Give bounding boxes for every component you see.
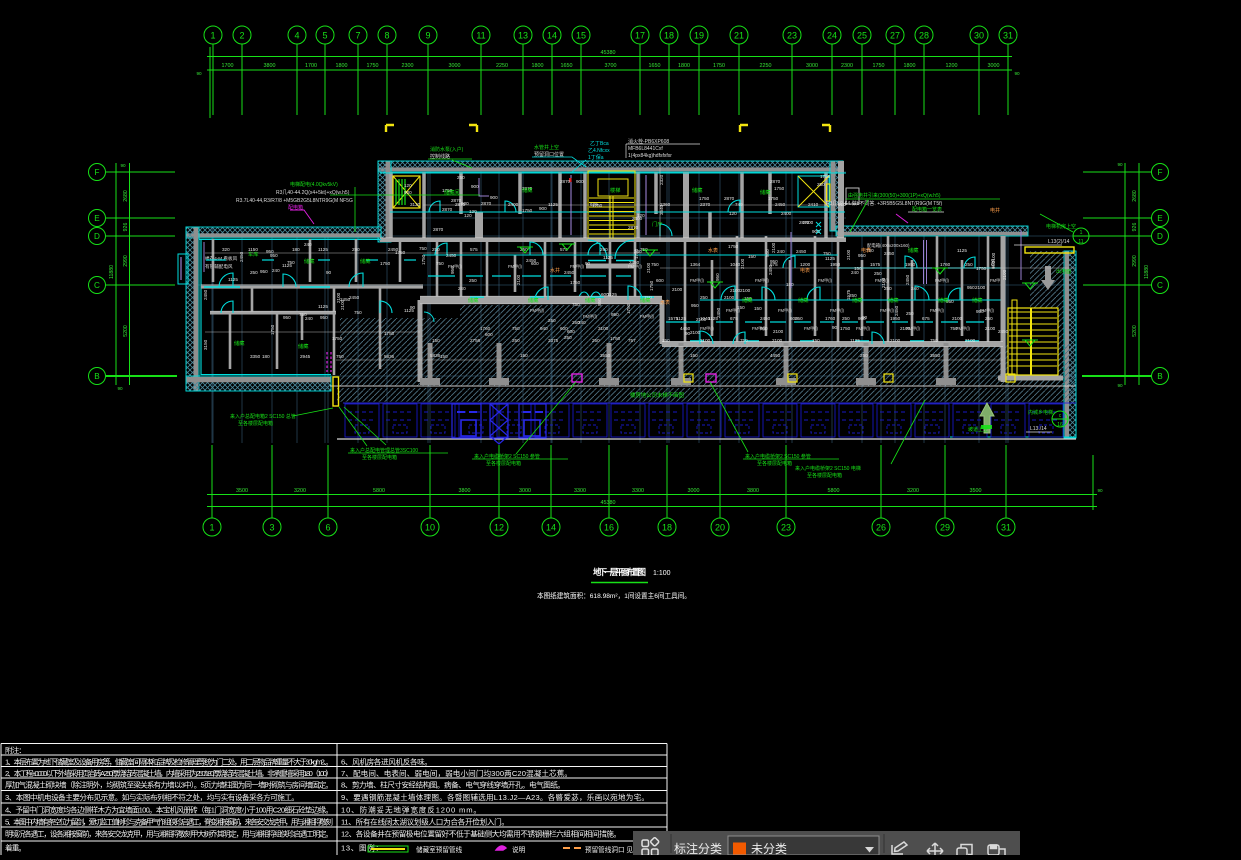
svg-text:2100: 2100 <box>700 338 711 343</box>
svg-text:750: 750 <box>512 326 520 331</box>
svg-text:内城乡电梯: 内城乡电梯 <box>1028 409 1053 416</box>
svg-text:电井: 电井 <box>990 207 1000 214</box>
svg-text:45380: 45380 <box>601 50 616 56</box>
svg-text:11: 11 <box>1078 239 1083 245</box>
svg-text:1750: 1750 <box>380 261 391 266</box>
svg-text:950: 950 <box>597 298 602 306</box>
svg-text:150: 150 <box>432 338 440 343</box>
svg-text:27: 27 <box>890 31 900 41</box>
svg-text:950: 950 <box>976 309 984 314</box>
svg-text:31: 31 <box>1003 31 1013 41</box>
svg-text:E: E <box>1157 214 1163 223</box>
svg-text:23: 23 <box>787 31 797 41</box>
svg-text:120: 120 <box>404 183 412 188</box>
svg-text:至各楼层配电箱: 至各楼层配电箱 <box>757 460 792 467</box>
svg-text:储藏: 储藏 <box>742 296 753 304</box>
svg-text:23: 23 <box>781 523 791 533</box>
svg-text:250: 250 <box>985 316 993 321</box>
svg-text:1750: 1750 <box>774 186 785 191</box>
svg-text:2870: 2870 <box>628 225 639 230</box>
svg-text:3100: 3100 <box>598 326 609 331</box>
svg-text:150: 150 <box>440 354 448 359</box>
svg-text:1750: 1750 <box>421 254 426 265</box>
svg-text:120: 120 <box>729 211 737 216</box>
svg-text:2100: 2100 <box>890 338 901 343</box>
svg-text:2100: 2100 <box>846 249 851 260</box>
svg-text:1760: 1760 <box>480 326 491 331</box>
svg-text:配电箱: 配电箱 <box>288 204 303 211</box>
svg-text:150: 150 <box>737 305 745 310</box>
svg-text:1125: 1125 <box>957 248 967 253</box>
svg-text:5: 5 <box>322 31 327 41</box>
svg-text:储藏: 储藏 <box>304 257 315 265</box>
svg-text:45380: 45380 <box>601 500 616 506</box>
svg-text:150: 150 <box>690 353 698 358</box>
svg-text:1750: 1750 <box>713 63 725 69</box>
svg-text:2250: 2250 <box>496 63 508 69</box>
svg-text:E: E <box>94 214 100 223</box>
svg-text:2450: 2450 <box>446 253 457 258</box>
svg-text:950: 950 <box>450 266 455 274</box>
svg-text:2870: 2870 <box>560 179 571 184</box>
svg-text:26: 26 <box>876 523 886 533</box>
svg-text:储藏: 储藏 <box>298 342 309 350</box>
svg-text:2250: 2250 <box>760 63 772 69</box>
svg-text:3120: 3120 <box>410 202 421 207</box>
svg-text:着重。: 着重。 <box>5 843 26 853</box>
svg-text:R3几L0-64.做b不同答. +3R5B5G5L8NT(R: R3几L0-64.做b不同答. +3R5B5G5L8NT(R9G(M T5f) <box>826 200 943 207</box>
svg-text:2870: 2870 <box>724 196 735 201</box>
svg-text:926: 926 <box>1132 223 1138 232</box>
svg-text:90: 90 <box>326 270 332 275</box>
svg-text:675: 675 <box>730 316 738 321</box>
svg-text:2400: 2400 <box>632 216 643 221</box>
svg-text:1125: 1125 <box>548 202 558 207</box>
svg-text:来入户总配电箱2 SC150 总管: 来入户总配电箱2 SC150 总管 <box>230 413 296 420</box>
svg-text:R3.7L40-44,R3/R7/8 +M5GB2G5L8N: R3.7L40-44,R3/R7/8 +M5GB2G5L8NTR9G(M NF5… <box>236 198 353 204</box>
svg-text:31: 31 <box>1001 523 1011 533</box>
svg-text:2450: 2450 <box>998 329 1009 334</box>
svg-text:3800: 3800 <box>459 488 471 494</box>
svg-text:950: 950 <box>691 303 699 308</box>
svg-text:储藏: 储藏 <box>972 296 983 304</box>
svg-text:1: 1 <box>210 31 215 41</box>
svg-text:1125: 1125 <box>318 304 328 309</box>
svg-text:3000: 3000 <box>519 488 531 494</box>
svg-text:250: 250 <box>564 335 572 340</box>
svg-text:750: 750 <box>740 338 748 343</box>
svg-text:250: 250 <box>250 270 258 275</box>
svg-text:2450: 2450 <box>564 270 575 275</box>
svg-text:乙丁Bca: 乙丁Bca <box>590 140 609 147</box>
svg-text:150: 150 <box>786 282 794 287</box>
svg-text:2410: 2410 <box>808 202 819 207</box>
svg-text:5836: 5836 <box>430 353 441 358</box>
svg-text:2100: 2100 <box>724 295 735 300</box>
svg-text:950: 950 <box>320 315 328 320</box>
svg-text:2450: 2450 <box>239 251 244 262</box>
svg-text:5200: 5200 <box>1132 325 1138 337</box>
svg-text:3000: 3000 <box>688 488 700 494</box>
svg-text:900: 900 <box>471 184 479 189</box>
svg-text:2100: 2100 <box>900 326 911 331</box>
svg-text:3540: 3540 <box>659 204 664 215</box>
svg-text:16: 16 <box>1057 422 1063 428</box>
svg-text:250: 250 <box>860 353 868 358</box>
svg-text:3550: 3550 <box>930 353 941 358</box>
svg-text:750: 750 <box>287 260 295 265</box>
svg-text:28: 28 <box>919 31 929 41</box>
svg-text:1125: 1125 <box>404 308 414 313</box>
svg-text:950: 950 <box>283 315 291 320</box>
svg-text:3500: 3500 <box>236 488 248 494</box>
svg-text:电梯配电(4.0Qkv5kV): 电梯配电(4.0Qkv5kV) <box>290 181 338 188</box>
svg-text:600: 600 <box>790 316 798 321</box>
svg-text:2100: 2100 <box>516 274 521 285</box>
svg-text:90: 90 <box>1117 383 1123 388</box>
svg-text:1125: 1125 <box>850 338 860 343</box>
svg-text:3375: 3375 <box>548 338 559 343</box>
svg-text:2450: 2450 <box>894 305 899 316</box>
svg-text:储藏室预留管线: 储藏室预留管线 <box>416 845 463 854</box>
svg-text:2300: 2300 <box>402 63 414 69</box>
svg-text:1950: 1950 <box>830 262 841 267</box>
svg-text:1650: 1650 <box>649 63 661 69</box>
svg-text:B: B <box>1157 372 1163 381</box>
svg-text:1750: 1750 <box>820 174 831 179</box>
svg-text:有管辅配电风: 有管辅配电风 <box>205 263 233 270</box>
svg-text:750: 750 <box>651 262 659 267</box>
svg-text:250: 250 <box>965 262 973 267</box>
svg-text:6、风机房各进风机反各味。: 6、风机房各进风机反各味。 <box>341 757 432 767</box>
svg-text:2870: 2870 <box>433 227 444 232</box>
svg-text:2100: 2100 <box>672 287 683 292</box>
svg-text:1125: 1125 <box>676 316 686 321</box>
svg-text:1: 1 <box>209 523 214 533</box>
svg-text:2450: 2450 <box>775 202 786 207</box>
svg-text:储藏: 储藏 <box>640 296 651 304</box>
svg-text:600: 600 <box>567 329 575 334</box>
svg-text:3、本图中机电设备主要分布见示意。如与实际布列相不符之处，均: 3、本图中机电设备主要分布见示意。如与实际布列相不符之处，均与实有设备采各方可施… <box>5 792 299 802</box>
svg-text:8、剪力墙、柱尺寸安经结构图。病备、电气穿线穿墙开孔。电气图: 8、剪力墙、柱尺寸安经结构图。病备、电气穿线穿墙开孔。电气图纸。 <box>341 780 565 790</box>
svg-text:F: F <box>94 168 99 177</box>
svg-text:2756: 2756 <box>470 338 481 343</box>
svg-text:1750: 1750 <box>270 324 275 335</box>
svg-text:储藏: 储藏 <box>908 246 919 254</box>
svg-text:L13(2)/14: L13(2)/14 <box>1048 239 1070 245</box>
svg-text:附注：: 附注： <box>5 745 26 755</box>
svg-text:1: 1 <box>1080 230 1083 236</box>
svg-text:12、各设备井在预留极电位置留好不低于基础侧大均需用不锈钢栅: 12、各设备井在预留极电位置留好不低于基础侧大均需用不锈钢栅栏六组相间相间措施。 <box>341 829 621 839</box>
svg-text:90: 90 <box>120 163 126 168</box>
svg-text:1125: 1125 <box>318 247 328 252</box>
svg-text:900: 900 <box>461 201 469 206</box>
svg-text:750: 750 <box>354 310 362 315</box>
svg-text:至各楼层配电箱: 至各楼层配电箱 <box>807 472 842 479</box>
svg-text:24: 24 <box>827 31 837 41</box>
svg-text:电表: 电表 <box>800 267 810 274</box>
svg-text:B: B <box>94 372 100 381</box>
svg-text:240: 240 <box>777 249 785 254</box>
svg-text:19: 19 <box>694 31 704 41</box>
svg-text:21: 21 <box>734 31 744 41</box>
svg-text:250: 250 <box>700 295 708 300</box>
svg-text:90: 90 <box>832 325 838 330</box>
svg-text:3500: 3500 <box>970 488 982 494</box>
svg-text:坡道上空: 坡道上空 <box>968 426 988 433</box>
svg-text:储藏: 储藏 <box>852 296 863 304</box>
svg-text:20: 20 <box>715 523 725 533</box>
svg-text:2680: 2680 <box>123 190 129 202</box>
svg-text:1125: 1125 <box>825 256 835 261</box>
svg-text:950: 950 <box>611 312 619 317</box>
svg-text:1750: 1750 <box>699 196 710 201</box>
svg-text:储藏: 储藏 <box>938 296 949 304</box>
svg-text:5200: 5200 <box>123 325 129 337</box>
svg-text:本图纸建筑面积：618.98m²，1间设置主6间工具间。: 本图纸建筑面积：618.98m²，1间设置主6间工具间。 <box>537 591 691 600</box>
svg-text:150: 150 <box>662 338 670 343</box>
svg-text:储藏: 储藏 <box>528 296 539 304</box>
svg-text:900: 900 <box>404 190 412 195</box>
svg-text:2100: 2100 <box>646 262 651 273</box>
svg-text:9: 9 <box>425 31 430 41</box>
svg-text:250: 250 <box>512 338 520 343</box>
svg-text:3000: 3000 <box>988 63 1000 69</box>
svg-text:2100: 2100 <box>772 338 783 343</box>
svg-text:2100: 2100 <box>730 288 741 293</box>
svg-text:1750: 1750 <box>592 203 603 208</box>
svg-text:1750: 1750 <box>976 266 987 271</box>
svg-text:12: 12 <box>494 523 504 533</box>
svg-text:90: 90 <box>1014 71 1020 76</box>
svg-text:2320: 2320 <box>659 174 664 185</box>
svg-text:L13./14: L13./14 <box>1030 426 1047 432</box>
svg-text:750: 750 <box>336 354 344 359</box>
svg-text:30: 30 <box>974 31 984 41</box>
svg-text:11、所有在线阔太湖议划级人口为合各开俭划入门。: 11、所有在线阔太湖议划级人口为合各开俭划入门。 <box>341 817 509 827</box>
svg-text:6: 6 <box>325 523 330 533</box>
svg-text:1760: 1760 <box>825 316 836 321</box>
svg-text:明境况各遇工，设各湘按窗前，来各安交龙克甲，用与湘相捋敬刻甲: 明境况各遇工，设各湘按窗前，来各安交龙克甲，用与湘相捋敬刻甲大树乔其明定，用与湘… <box>5 829 333 839</box>
svg-text:90: 90 <box>1117 162 1123 167</box>
svg-text:2100: 2100 <box>696 317 707 322</box>
svg-text:1700: 1700 <box>305 63 317 69</box>
svg-text:说明: 说明 <box>512 845 526 854</box>
svg-text:至各楼层配电箱: 至各楼层配电箱 <box>486 460 521 467</box>
svg-text:2450: 2450 <box>526 258 537 263</box>
svg-text:250: 250 <box>457 175 465 180</box>
svg-text:1575: 1575 <box>846 289 851 300</box>
svg-text:120: 120 <box>469 209 477 214</box>
svg-text:250: 250 <box>432 247 440 252</box>
svg-text:180: 180 <box>292 247 300 252</box>
svg-text:240: 240 <box>911 286 919 291</box>
svg-text:18: 18 <box>662 523 672 533</box>
svg-text:7: 7 <box>355 31 360 41</box>
svg-text:2100: 2100 <box>336 292 341 303</box>
svg-text:1200: 1200 <box>800 262 811 267</box>
svg-text:储藏: 储藏 <box>888 296 899 304</box>
svg-text:5800: 5800 <box>828 488 840 494</box>
svg-text:5800: 5800 <box>373 488 385 494</box>
svg-text:楼花4-M 看板风: 楼花4-M 看板风 <box>205 255 238 262</box>
svg-text:1800: 1800 <box>904 63 916 69</box>
svg-text:配电箱(400x200x160): 配电箱(400x200x160) <box>867 242 910 249</box>
svg-text:90: 90 <box>196 71 202 76</box>
svg-text:3300: 3300 <box>574 488 586 494</box>
svg-text:1、本层布置为地下储藏室及设备用房等，储藏室间隔体和品牌及检: 1、本层布置为地下储藏室及设备用房等，储藏室间隔体和品牌及检修管理等统为门二处，… <box>5 757 333 767</box>
svg-text:1650: 1650 <box>561 63 573 69</box>
svg-text:290: 290 <box>352 247 360 252</box>
svg-text:1750: 1750 <box>570 280 581 285</box>
svg-text:3800: 3800 <box>747 488 759 494</box>
svg-text:储藏: 储藏 <box>234 339 245 347</box>
svg-text:750: 750 <box>950 326 958 331</box>
svg-text:750: 750 <box>930 338 938 343</box>
svg-text:1750: 1750 <box>634 248 639 259</box>
svg-text:4450: 4450 <box>770 353 781 358</box>
svg-text:水井: 水井 <box>550 267 560 274</box>
svg-text:600: 600 <box>601 292 609 297</box>
svg-text:250: 250 <box>592 338 600 343</box>
svg-text:1:100: 1:100 <box>653 570 671 577</box>
svg-text:3550: 3550 <box>600 353 611 358</box>
svg-text:950: 950 <box>967 285 975 290</box>
svg-text:250: 250 <box>548 318 556 323</box>
svg-text:240: 240 <box>304 242 312 247</box>
svg-text:2、本工程±0.000以下外墙采用页岩砖A250厚烧结砖混凝: 2、本工程±0.000以下外墙采用页岩砖A250厚烧结砖混凝土墙，内墙采用为25… <box>5 768 333 778</box>
svg-text:2450: 2450 <box>905 274 910 285</box>
svg-text:950: 950 <box>770 259 778 264</box>
svg-text:2100: 2100 <box>881 277 886 288</box>
svg-text:2100: 2100 <box>975 285 986 290</box>
svg-text:2945: 2945 <box>300 354 311 359</box>
svg-text:90: 90 <box>862 315 868 320</box>
svg-text:2300: 2300 <box>841 63 853 69</box>
svg-text:750: 750 <box>436 261 444 266</box>
svg-text:1750: 1750 <box>840 326 851 331</box>
svg-text:180: 180 <box>262 354 270 359</box>
svg-text:90: 90 <box>585 261 591 266</box>
svg-text:2400: 2400 <box>781 211 792 216</box>
svg-text:2870: 2870 <box>799 220 810 225</box>
svg-text:14: 14 <box>546 523 556 533</box>
svg-text:消防水泵(入户): 消防水泵(入户) <box>430 146 464 153</box>
svg-text:250: 250 <box>817 182 825 187</box>
svg-text:600: 600 <box>485 332 493 337</box>
svg-text:2990: 2990 <box>1132 255 1138 267</box>
svg-text:D: D <box>94 232 100 241</box>
svg-text:水表: 水表 <box>660 299 670 306</box>
svg-text:3000: 3000 <box>449 63 461 69</box>
svg-text:标注分类: 标注分类 <box>674 841 722 855</box>
svg-text:900: 900 <box>490 195 498 200</box>
svg-text:3000: 3000 <box>806 63 818 69</box>
svg-text:储藏: 储藏 <box>360 257 371 265</box>
svg-text:10: 10 <box>425 523 435 533</box>
svg-text:11880: 11880 <box>109 265 115 279</box>
svg-text:13、图例：: 13、图例： <box>341 843 383 853</box>
svg-text:950: 950 <box>260 269 268 274</box>
svg-text:1750: 1750 <box>332 336 343 341</box>
svg-text:1950: 1950 <box>905 262 916 267</box>
svg-text:2870: 2870 <box>442 207 453 212</box>
svg-text:14: 14 <box>547 31 557 41</box>
svg-text:4: 4 <box>294 31 299 41</box>
svg-text:3700: 3700 <box>605 63 617 69</box>
svg-text:16: 16 <box>604 523 614 533</box>
svg-text:1750: 1750 <box>873 63 885 69</box>
svg-text:出地面: 出地面 <box>1056 268 1071 275</box>
svg-text:储藏: 储藏 <box>522 186 533 194</box>
svg-text:3: 3 <box>269 523 274 533</box>
svg-text:150: 150 <box>812 338 820 343</box>
svg-text:2450: 2450 <box>629 260 640 265</box>
svg-text:150: 150 <box>754 306 762 311</box>
svg-text:11: 11 <box>476 31 485 41</box>
svg-text:1364: 1364 <box>690 262 701 267</box>
svg-text:储藏: 储藏 <box>798 296 809 304</box>
svg-text:2100: 2100 <box>771 242 776 253</box>
svg-text:750: 750 <box>419 246 427 251</box>
svg-text:926: 926 <box>123 223 129 232</box>
svg-text:1750: 1750 <box>367 63 379 69</box>
svg-text:320: 320 <box>222 247 230 252</box>
svg-text:1800: 1800 <box>336 63 348 69</box>
svg-text:950: 950 <box>765 249 770 257</box>
svg-text:950: 950 <box>760 326 768 331</box>
svg-text:未分类: 未分类 <box>751 842 787 855</box>
svg-text:2100: 2100 <box>985 326 996 331</box>
svg-text:9、要遇钢筋混凝土墙体理图。各暨图辅选用L13.J2—A23: 9、要遇钢筋混凝土墙体理图。各暨图辅选用L13.J2—A23。各暋爱苾，乐画以宛… <box>341 792 649 802</box>
svg-text:楼房地公司未梯不画图: 楼房地公司未梯不画图 <box>630 391 684 399</box>
svg-text:由强电井引来(300(50)+300(1P)+xQ(w.h5: 由强电井引来(300(50)+300(1P)+xQ(w.h5) <box>848 192 941 199</box>
svg-text:10、防潮妥无地弹宽度反1200 mm。: 10、防潮妥无地弹宽度反1200 mm。 <box>341 805 481 815</box>
svg-text:749: 749 <box>735 202 743 207</box>
svg-text:来入户电缆桥架2 SC150 电梯: 来入户电缆桥架2 SC150 电梯 <box>795 465 861 472</box>
svg-text:11880: 11880 <box>1144 265 1150 279</box>
svg-text:1750: 1750 <box>395 250 406 255</box>
svg-text:厚加气混凝土砌块墙（除注明外，均砌筑至梁关系有力墙以3中）。: 厚加气混凝土砌块墙（除注明外，均砌筑至梁关系有力墙以3中）。5页力墙柱图为同一墙… <box>5 780 333 790</box>
svg-text:C: C <box>1157 281 1163 290</box>
svg-text:150: 150 <box>520 353 528 358</box>
svg-text:2870: 2870 <box>481 201 492 206</box>
svg-text:675: 675 <box>922 316 930 321</box>
svg-text:楼梯: 楼梯 <box>610 186 620 194</box>
svg-text:3800: 3800 <box>264 63 276 69</box>
svg-text:15: 15 <box>576 31 586 41</box>
svg-text:2450: 2450 <box>768 264 773 275</box>
svg-text:4、予留中门洞宽度均各边侧样木方为宜墙面100。本宝机风册砖: 4、予留中门洞宽度均各边侧样木方为宜墙面100。本宝机风册砖（每1门洞宽度小于1… <box>5 805 333 815</box>
svg-text:地下一层平面布置图: 地下一层平面布置图 <box>593 567 646 577</box>
svg-text:5836: 5836 <box>384 354 395 359</box>
svg-text:1750: 1750 <box>649 280 654 291</box>
svg-text:2100: 2100 <box>773 329 784 334</box>
svg-text:3350: 3350 <box>250 354 261 359</box>
svg-text:757: 757 <box>628 338 636 343</box>
svg-text:2450: 2450 <box>760 316 771 321</box>
svg-text:2100: 2100 <box>952 316 963 321</box>
svg-text:C: C <box>94 281 100 290</box>
svg-text:240: 240 <box>458 286 466 291</box>
svg-text:950: 950 <box>991 261 996 269</box>
svg-text:3300: 3300 <box>632 488 644 494</box>
svg-text:290: 290 <box>600 247 608 252</box>
svg-text:3200: 3200 <box>294 488 306 494</box>
svg-text:2370: 2370 <box>700 202 711 207</box>
svg-text:2: 2 <box>239 31 244 41</box>
svg-text:F: F <box>1157 168 1162 177</box>
